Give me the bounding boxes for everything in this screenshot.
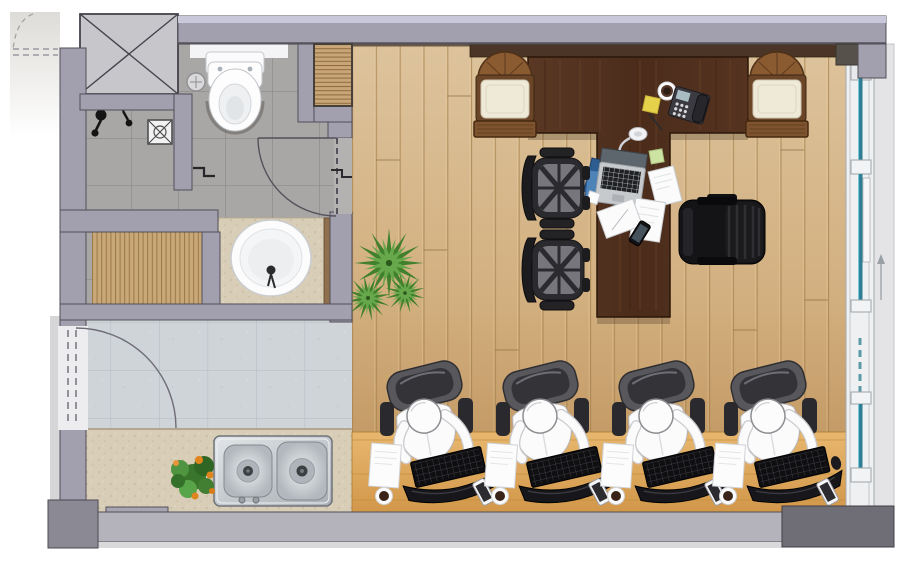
slatted-vent-niche xyxy=(314,44,352,106)
wood-deck xyxy=(92,228,204,310)
green-sticky-note xyxy=(649,149,664,164)
elevator-shaft xyxy=(80,14,178,94)
wall-trim-shelf xyxy=(470,44,852,57)
left-wall xyxy=(60,48,86,512)
entry-floor xyxy=(60,320,352,430)
guest-chair-right xyxy=(746,52,808,137)
sliding-pane xyxy=(863,178,870,262)
corridor-outside xyxy=(10,12,60,500)
floor-drain xyxy=(148,120,172,144)
floor-plan xyxy=(0,0,900,562)
window-wall xyxy=(846,44,894,512)
executive-chair xyxy=(679,194,765,265)
corner-block-left xyxy=(48,500,98,548)
kitchen-sink xyxy=(214,436,332,506)
faucet xyxy=(267,266,276,275)
exterior-strip xyxy=(874,44,894,512)
toilet xyxy=(206,52,264,132)
vanity-basin xyxy=(231,220,311,296)
floor-plan-canvas xyxy=(0,0,900,562)
corner-block-right xyxy=(782,506,894,547)
guest-chair-left xyxy=(474,52,536,137)
wall-drain-fixture xyxy=(187,73,205,91)
yellow-sticky-note xyxy=(642,96,660,114)
